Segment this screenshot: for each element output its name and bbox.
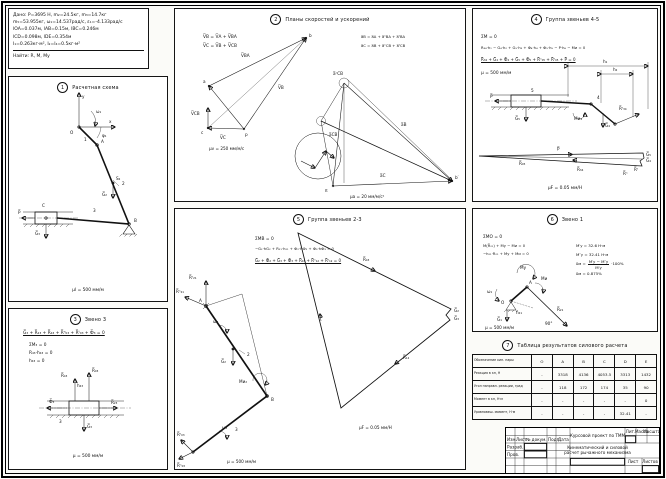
label: R̅ᵗ <box>633 167 638 172</box>
label: R̅ⁿ₂₁ <box>175 289 184 294</box>
cell: 90 <box>636 381 657 394</box>
cell: - <box>552 394 573 407</box>
panel-plans: 2 Планы скоростей и ускорений V̅B = V̅A … <box>174 8 466 202</box>
label: R̅₄₃ <box>60 373 67 378</box>
stamp-title: Курсовой проект по ТММ <box>570 433 626 438</box>
label: 2 <box>122 181 125 186</box>
table-row: Уравновеш. момент, Н·м - - - - 32.41 - <box>473 407 657 420</box>
row-label: Момент в кп, Н·м <box>473 394 532 407</box>
label: R̅₃₄ <box>576 167 583 172</box>
force-scale-note: μF = 0.05 мм/Н <box>473 186 657 191</box>
plans-drawing: b a p c V̅BA V̅B V̅CB V̅C μv = 250 мм/м/… <box>175 9 467 203</box>
label: O <box>501 300 505 305</box>
group23-drawing: A B 2 3 G̅₂ R̅ᵗ₂₁ R̅ⁿ₂₁ Mи₂ ω₂ ω₃ R̅ᵗ₀₃ … <box>175 209 467 471</box>
panel-scheme: 1 Расчетная схема <box>8 76 168 302</box>
links-sketch <box>179 281 268 459</box>
label: Mу <box>520 265 527 270</box>
row-label: Уравновеш. момент, Н·м <box>473 407 532 420</box>
label: x <box>109 119 112 124</box>
cell: - <box>636 407 657 420</box>
panel-group23: 5 Группа звеньев 2-3 ΣMB = 0 −G₂·hG₂ + R… <box>174 208 466 470</box>
label: ω₁ <box>96 109 102 114</box>
cell: 3313 <box>615 368 636 381</box>
cell: 174 <box>594 381 615 394</box>
cell: - <box>532 368 553 381</box>
label: G̅₃ <box>454 316 459 321</box>
stamp-label: Лист <box>628 459 639 464</box>
label: 90° <box>545 321 552 326</box>
label: G̅₅ <box>515 116 520 121</box>
results-table: Обозначение кин. пары O A B C D E Реакци… <box>472 354 657 420</box>
cell: - <box>552 407 573 420</box>
crank-sketch <box>496 264 567 326</box>
scale-length: μ = 500 мм/м <box>227 459 256 464</box>
given-line: Дано: P=3695 Н, m₂=24.5кг, m₃=14.7кг <box>13 12 144 19</box>
label: O <box>70 130 74 135</box>
label: P̅ <box>556 147 560 152</box>
panel-group45: 4 Группа звеньев 4-5 ΣM = 0 R₃₄·h₁ − G₄·… <box>472 8 658 202</box>
table-header-row: Обозначение кин. пары O A B C D E <box>473 355 657 368</box>
table-row: Угол направл. реакции, град - 118 172 17… <box>473 381 657 394</box>
cell: 172 <box>573 381 594 394</box>
label: R̅₂₃ <box>110 400 117 405</box>
label: 2 <box>247 352 250 357</box>
stamp-label: Листов <box>642 459 658 464</box>
panel-link3: 3 Звено 3 G̅₃ + R̅₂₃ + R̅₄₃ + R̅ⁿ₀₃ + R̅… <box>8 308 168 470</box>
label: Mи₄ <box>574 116 582 121</box>
polygon-labels: R̅₄₃ G̅₂ G̅₃ R̅₁₂ μF = 0.05 мм/Н <box>359 257 459 430</box>
label: P̅ <box>489 94 493 99</box>
polygon-labels: P̅ R̅₀₅ R̅₃₄ G̅₅ G̅₄ R̅ᵗ R̅ⁿ <box>518 147 651 177</box>
scale-velocity: μv = 250 мм/м/с <box>209 146 245 151</box>
label: 3 <box>93 208 96 213</box>
title-block-grid: Изм. Лист № докум. Подп. Дата Разраб. Пр… <box>506 428 659 473</box>
cell: - <box>615 394 636 407</box>
given-line: I₁=0.263кг·м², I₂=I₄=0.5кг·м² <box>13 41 144 48</box>
row-label: Угол направл. реакции, град <box>473 381 532 394</box>
column-header: D <box>615 355 636 368</box>
acceleration-polygon <box>295 78 453 187</box>
label: A <box>199 298 202 303</box>
label: G̅₂ <box>454 308 459 313</box>
column-header: B <box>573 355 594 368</box>
label: 3 <box>59 419 62 424</box>
cell: 118 <box>552 381 573 394</box>
cell: - <box>594 407 615 420</box>
title-block: Изм. Лист № докум. Подп. Дата Разраб. Пр… <box>505 427 660 474</box>
velocity-labels: b a p c V̅BA V̅B V̅CB V̅C μv = 250 мм/м/… <box>190 33 312 151</box>
force-polygon <box>298 233 451 408</box>
label: h₁ <box>603 59 608 64</box>
given-data-box: Дано: P=3695 Н, m₂=24.5кг, m₃=14.7кг m₅=… <box>8 8 149 69</box>
scale-note: μ = 500 мм/м <box>485 325 514 330</box>
stamp-label: Масштаб <box>643 429 659 434</box>
label: A <box>101 139 104 144</box>
label: 1 <box>84 137 87 142</box>
label: a̅C <box>379 173 385 178</box>
mechanism-scheme-drawing: y x O ω₁ φ₁ A 1 2 S₂ G̅₂ B 3 C G̅₃ P̅ <box>9 77 169 303</box>
stamp-label: Разраб. <box>507 445 523 450</box>
label: ω₂ <box>213 319 219 324</box>
dimension-lines <box>568 62 648 117</box>
label: Mи <box>541 276 548 281</box>
label: ω₃ <box>222 425 228 430</box>
label: B <box>134 218 137 223</box>
label: h₂ <box>613 67 618 72</box>
label: h₂₁ <box>516 310 522 315</box>
label: R̅ᵗ₂₁ <box>188 275 196 280</box>
table-row: Реакция в кп, Н - 3318 4136 4053.5 3313 … <box>473 368 657 381</box>
scale-force: μF = 0.05 мм/Н <box>359 425 392 430</box>
label: R̅₂₁ <box>556 307 563 312</box>
cell: 32.41 <box>615 407 636 420</box>
crank-labels: O A G̅₁ R̅₂₁ Mу Mи ω₁ h₂₁ 90° μ = 500 мм… <box>485 265 564 330</box>
label: c <box>201 130 204 135</box>
label: R̅ⁿ <box>622 171 628 176</box>
links-and-forces <box>495 101 639 127</box>
label: h₄₃ <box>77 383 83 388</box>
label: R̅₁₂ <box>402 355 409 360</box>
label: R̅₀₃ <box>91 368 98 373</box>
label: a̅ⁿCB <box>332 71 343 76</box>
label: 5 <box>531 88 534 93</box>
label: G̅₄ <box>605 123 610 128</box>
column-header: E <box>636 355 657 368</box>
cell: 35 <box>615 381 636 394</box>
label: Ф̅₃ <box>49 399 55 404</box>
label: V̅BA <box>240 53 249 58</box>
column-header: C <box>594 355 615 368</box>
sketch-labels: A B 2 3 G̅₂ R̅ᵗ₂₁ R̅ⁿ₂₁ Mи₂ ω₂ ω₃ R̅ᵗ₀₃ … <box>175 275 274 468</box>
group45-drawing: h₁ h₂ G̅₅ G̅₄ P̅ R̅ᵗ₃₄ 5 4 Mи₄ P̅ R̅₀₅ R… <box>473 9 659 203</box>
scale-note: μ = 500 мм/м <box>9 454 167 459</box>
panel-title-text: Таблица результатов силового расчета <box>517 343 627 349</box>
force-labels: R̅₄₃ R̅₀₃ Ф̅₃ G̅₃ R̅₂₃ 3 h₄₃ <box>49 368 118 429</box>
label: R̅₄₃ <box>362 257 369 262</box>
cell: - <box>532 394 553 407</box>
acceleration-labels: π b′ a̅B a̅C a̅CB a̅ⁿCB μa = 20 мм/м/с² <box>325 71 459 199</box>
label: G̅₂ <box>102 192 107 197</box>
cell: - <box>594 394 615 407</box>
label: π <box>325 188 328 193</box>
stamp-doc-name: расчет рычажного механизма <box>564 450 631 455</box>
find-line: Найти: R, M, Mу <box>13 53 144 60</box>
label: b <box>309 33 312 38</box>
scale-acceleration: μa = 20 мм/м/с² <box>350 194 385 199</box>
panel-number-badge: 7 <box>502 340 513 351</box>
force-vectors <box>47 373 117 431</box>
label: Mи₂ <box>239 379 247 384</box>
label: G̅₃ <box>87 424 92 429</box>
panel-results-table: 7 Таблица результатов силового расчета О… <box>472 340 658 426</box>
stamp-label: Дата <box>558 437 569 442</box>
label: R̅ᵗ₃₄ <box>618 106 626 111</box>
label: R̅ⁿ₀₃ <box>176 463 185 468</box>
label: S₂ <box>116 176 121 181</box>
label: a̅B <box>400 122 406 127</box>
label: C <box>42 203 45 208</box>
scale-note: μl = 500 мм/м <box>9 288 167 293</box>
cell: - <box>532 407 553 420</box>
panel7-title: 7 Таблица результатов силового расчета <box>472 340 658 351</box>
table-row: Момент в кп, Н·м - - - - - 0 <box>473 394 657 407</box>
label: a̅CB <box>328 132 337 137</box>
given-line: lCD=0.098м, lDE=0.354м <box>13 34 144 41</box>
link3-force-drawing: R̅₄₃ R̅₀₃ Ф̅₃ G̅₃ R̅₂₃ 3 h₄₃ <box>9 309 169 471</box>
given-line: lOA=0.037м, lAB=0.15м, lBC=0.246м <box>13 26 144 33</box>
label: 3 <box>235 427 238 432</box>
label: a <box>203 79 206 84</box>
label: R̅₀₅ <box>518 161 525 166</box>
label: P̅ <box>17 210 21 215</box>
label: G̅₅ <box>646 152 651 157</box>
stamp-label: Пров. <box>507 452 519 457</box>
cell: 3318 <box>552 368 573 381</box>
label: y <box>82 94 85 99</box>
column-header: Обозначение кин. пары <box>473 355 532 368</box>
column-header: O <box>532 355 553 368</box>
label: p <box>245 132 248 137</box>
label: G̅₁ <box>497 317 502 322</box>
velocity-polygon <box>207 37 307 130</box>
force-polygon <box>479 153 644 166</box>
cell: - <box>573 407 594 420</box>
link1-drawing: O A G̅₁ R̅₂₁ Mу Mи ω₁ h₂₁ 90° μ = 500 мм… <box>473 209 659 333</box>
mechanism-labels: h₁ h₂ G̅₅ G̅₄ P̅ R̅ᵗ₃₄ 5 4 Mи₄ <box>489 59 626 128</box>
row-label: Реакция в кп, Н <box>473 368 532 381</box>
stamp-label: № докум. <box>526 437 547 442</box>
panel-link1: 6 Звено 1 ΣMO = 0 M(R̅₂₁) + Mу − Mи = 0 … <box>472 208 658 332</box>
label: ω₁ <box>487 289 493 294</box>
cell: - <box>573 394 594 407</box>
label: G̅₃ <box>35 231 40 236</box>
cell: 0 <box>636 394 657 407</box>
label: φ₁ <box>102 133 107 138</box>
label: V̅CB <box>190 111 199 116</box>
label: G̅₄ <box>646 158 651 163</box>
cell: 4136 <box>573 368 594 381</box>
label: R̅ᵗ₀₃ <box>176 432 184 437</box>
column-header: A <box>552 355 573 368</box>
label: B <box>271 397 274 402</box>
cell: 4053.5 <box>594 368 615 381</box>
given-line: m₅=53.955кг, ω₁=14.537рад/с, ε₁=-4.133ра… <box>13 19 144 26</box>
label: G̅₂ <box>221 359 226 364</box>
drawing-sheet: Дано: P=3695 Н, m₂=24.5кг, m₃=14.7кг m₅=… <box>0 0 666 479</box>
label: A <box>529 280 532 285</box>
cell: - <box>532 381 553 394</box>
label: V̅B <box>277 85 283 90</box>
label: V̅C <box>219 135 225 140</box>
cell: 1432 <box>636 368 657 381</box>
label: 4 <box>597 95 600 100</box>
label: b′ <box>455 175 459 180</box>
divider <box>13 50 144 51</box>
